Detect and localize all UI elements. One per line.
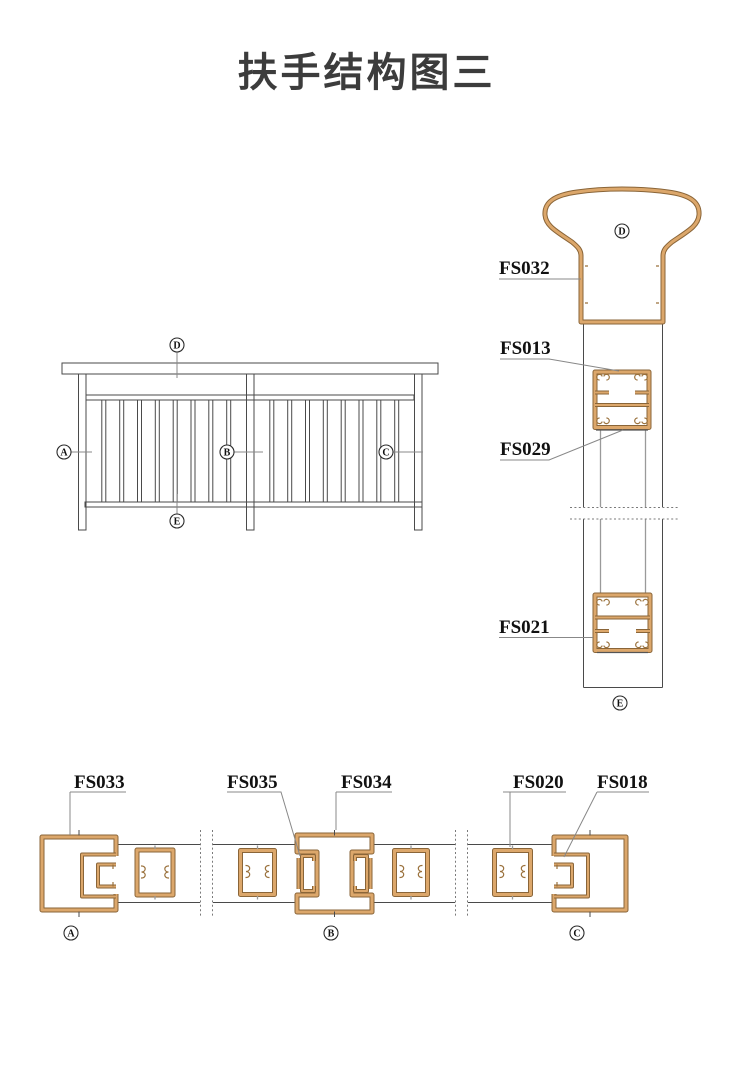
leader-fs033 xyxy=(70,792,126,835)
marker-b-elevation: B xyxy=(220,445,234,459)
marker-d-section: D xyxy=(615,224,629,238)
profile-fs033-endpost xyxy=(40,830,119,917)
profile-fs034-midpost xyxy=(297,830,372,917)
marker-c-plan: C xyxy=(570,926,584,940)
section-baluster-lines xyxy=(601,430,646,593)
baluster-section-a xyxy=(134,846,177,900)
part-label-fs033: FS033 xyxy=(74,772,125,793)
elevation-handrail xyxy=(62,363,438,374)
baluster-section-b-left xyxy=(237,846,278,900)
profile-fs021-bottomrail xyxy=(592,593,653,654)
part-label-fs021: FS021 xyxy=(499,617,550,638)
marker-b-plan: B xyxy=(324,926,338,940)
svg-text:B: B xyxy=(224,448,231,459)
marker-c-elevation: C xyxy=(379,445,393,459)
vertical-section-view: FS032 FS013 FS029 FS021 D E xyxy=(499,189,699,710)
cross-section-view: FS033 FS035 FS034 FS020 FS018 A B C xyxy=(40,772,650,940)
baluster-section-b-right xyxy=(391,846,431,900)
svg-text:C: C xyxy=(573,929,580,940)
part-label-fs013: FS013 xyxy=(500,338,551,359)
profile-fs018-endpost xyxy=(552,830,629,917)
svg-text:A: A xyxy=(60,448,68,459)
part-label-fs034: FS034 xyxy=(341,772,392,793)
marker-a-plan: A xyxy=(64,926,78,940)
svg-text:D: D xyxy=(173,341,180,352)
marker-d-elevation: D xyxy=(170,338,184,352)
elevation-view: D A B C E xyxy=(57,338,438,530)
part-label-fs018: FS018 xyxy=(597,772,648,793)
profile-fs013-toprail xyxy=(592,369,652,431)
leader-fs034 xyxy=(336,792,392,830)
marker-e-section: E xyxy=(613,696,627,710)
marker-a-elevation: A xyxy=(57,445,71,459)
part-label-fs035: FS035 xyxy=(227,772,278,793)
svg-text:C: C xyxy=(382,448,389,459)
leader-fs035 xyxy=(227,792,300,856)
drawing-sheet: 扶手结构图三 xyxy=(0,0,733,1083)
drawing-canvas: D A B C E xyxy=(0,0,733,1083)
section-break-lines xyxy=(570,508,678,520)
baluster-section-c xyxy=(490,846,535,900)
svg-text:A: A xyxy=(67,929,75,940)
part-label-fs032: FS032 xyxy=(499,258,550,279)
elevation-balusters-panel1 xyxy=(102,400,231,502)
svg-text:E: E xyxy=(174,517,181,528)
profile-fs032-handrail xyxy=(545,189,699,322)
svg-text:B: B xyxy=(328,929,335,940)
svg-text:D: D xyxy=(618,227,625,238)
part-label-fs029: FS029 xyxy=(500,439,551,460)
part-label-fs020: FS020 xyxy=(513,772,564,793)
svg-text:E: E xyxy=(617,699,624,710)
elevation-subrail xyxy=(86,395,414,400)
marker-e-elevation: E xyxy=(170,514,184,528)
